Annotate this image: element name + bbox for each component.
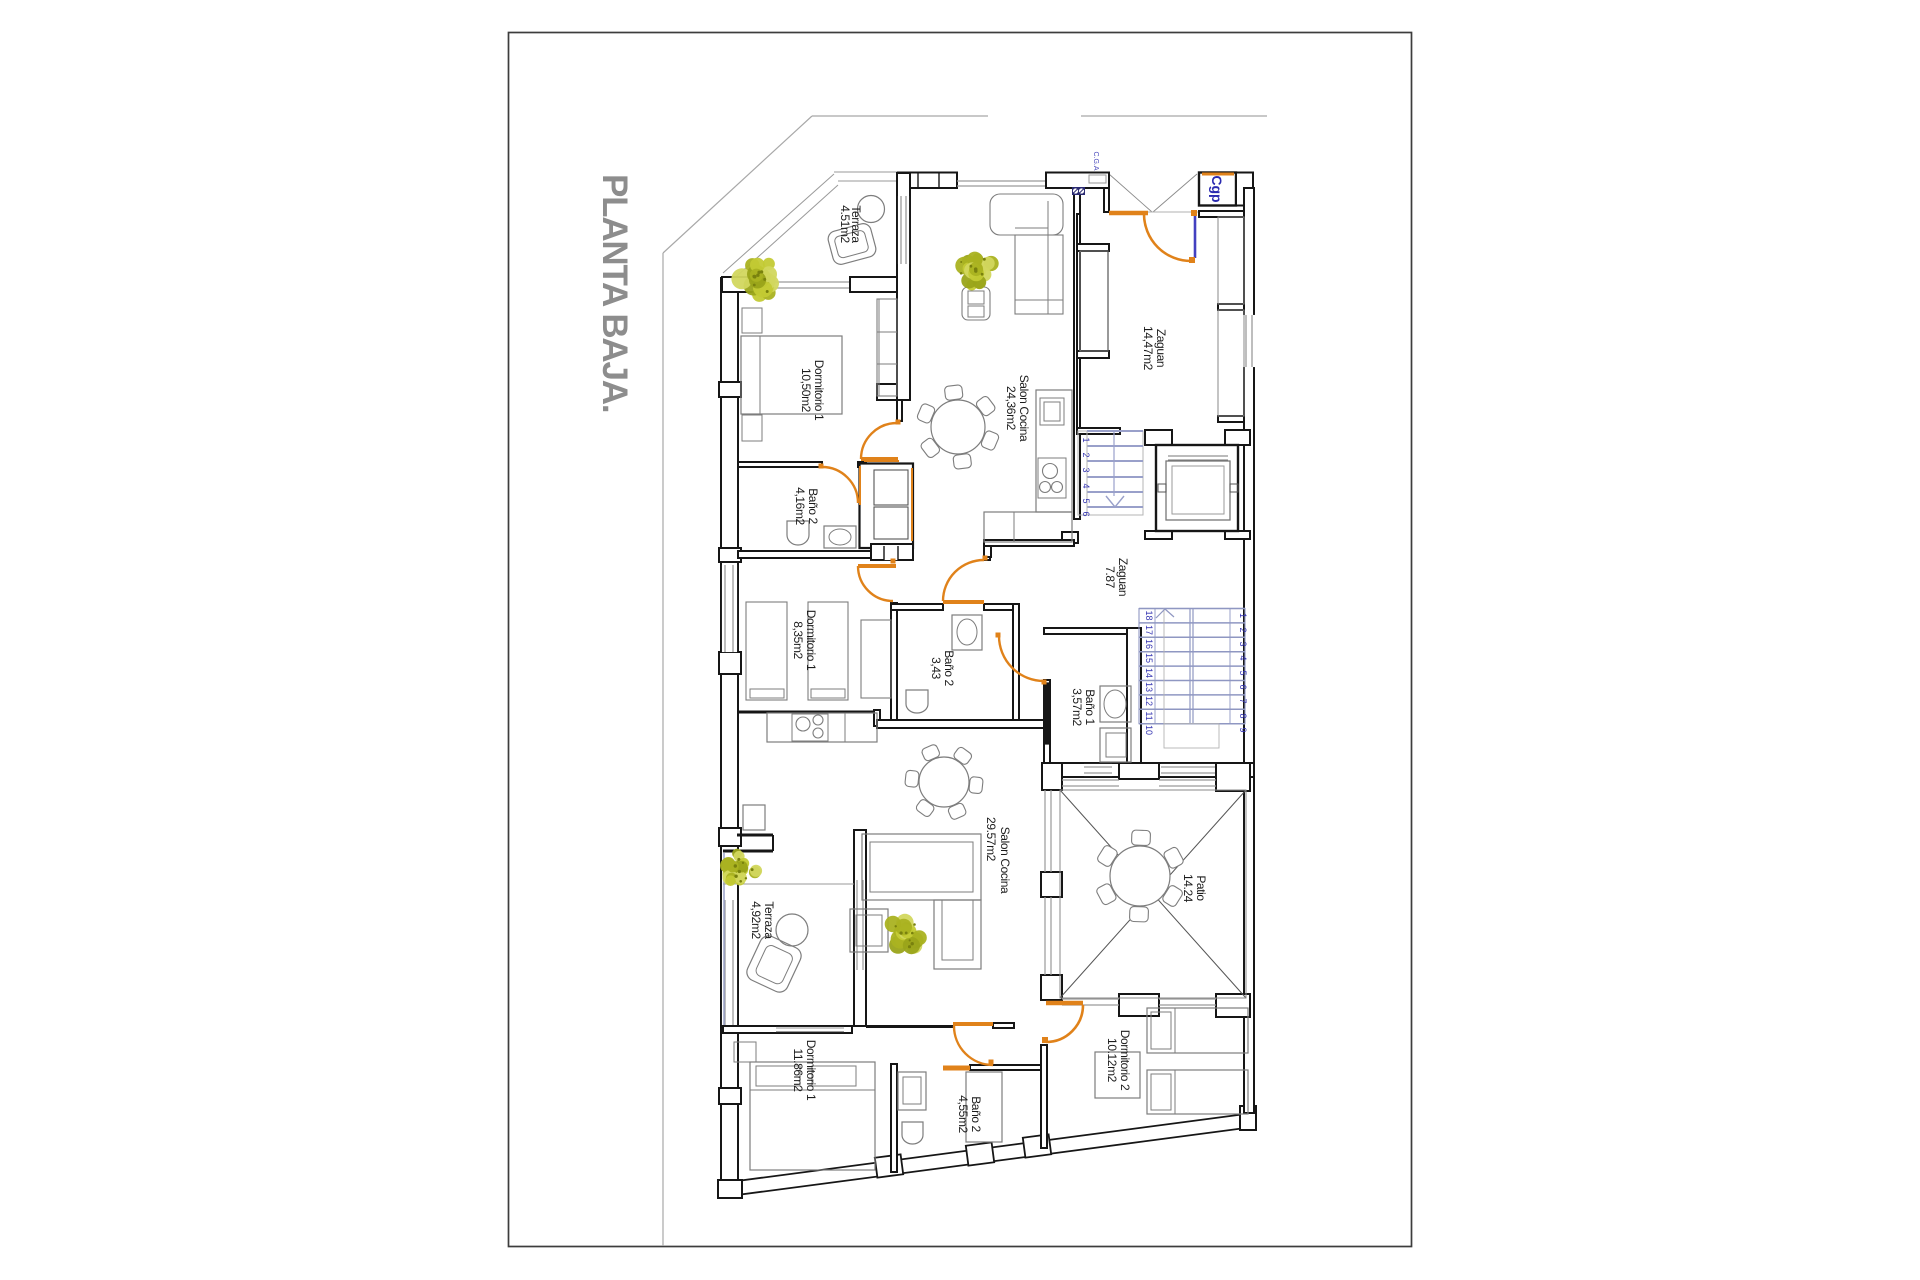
svg-text:10,50m2: 10,50m2: [799, 368, 813, 413]
svg-text:Salon Cocina: Salon Cocina: [1017, 375, 1031, 442]
svg-text:29.57m2: 29.57m2: [984, 817, 998, 862]
svg-text:Dormitorio 1: Dormitorio 1: [804, 610, 818, 671]
svg-text:15: 15: [1144, 653, 1154, 663]
svg-text:5: 5: [1238, 670, 1248, 675]
svg-text:24,36m2: 24,36m2: [1004, 386, 1018, 431]
svg-text:13: 13: [1144, 682, 1154, 692]
svg-text:1: 1: [1081, 437, 1091, 442]
svg-text:Dormitorio 1: Dormitorio 1: [812, 360, 826, 421]
svg-text:3,43: 3,43: [929, 657, 943, 679]
svg-text:12: 12: [1144, 696, 1154, 706]
svg-text:3: 3: [1238, 641, 1248, 646]
svg-text:PLANTA BAJA.: PLANTA BAJA.: [595, 174, 634, 412]
svg-text:3: 3: [1081, 467, 1091, 472]
svg-text:Salon Cocina: Salon Cocina: [998, 827, 1012, 894]
svg-text:8: 8: [1238, 713, 1248, 718]
svg-text:9: 9: [1238, 727, 1248, 732]
svg-text:14: 14: [1144, 668, 1154, 678]
svg-text:11: 11: [1144, 711, 1154, 720]
svg-text:8,35m2: 8,35m2: [791, 621, 805, 659]
svg-text:4,92m2: 4,92m2: [749, 901, 763, 939]
svg-text:4,55m2: 4,55m2: [956, 1095, 970, 1133]
svg-text:Dormitorio 2: Dormitorio 2: [1118, 1030, 1132, 1091]
svg-text:5: 5: [1081, 498, 1091, 503]
svg-text:Terraza: Terraza: [762, 901, 776, 939]
svg-text:Cgp: Cgp: [1209, 175, 1225, 202]
svg-text:Dormitorio 1: Dormitorio 1: [804, 1040, 818, 1101]
svg-text:2: 2: [1081, 452, 1091, 457]
svg-text:Baño 2: Baño 2: [942, 650, 956, 686]
svg-text:Baño 2: Baño 2: [969, 1096, 983, 1132]
svg-text:Baño 2: Baño 2: [806, 488, 820, 524]
svg-text:6: 6: [1238, 684, 1248, 689]
svg-text:10: 10: [1144, 725, 1154, 735]
svg-text:7: 7: [1238, 698, 1248, 703]
svg-text:4: 4: [1238, 655, 1248, 660]
svg-text:Zaguan: Zaguan: [1116, 558, 1130, 596]
svg-text:4.51m2: 4.51m2: [838, 205, 852, 243]
svg-text:2: 2: [1238, 627, 1248, 632]
svg-text:17: 17: [1144, 625, 1154, 635]
svg-text:14.24: 14.24: [1181, 874, 1195, 903]
svg-text:4,16m2: 4,16m2: [793, 487, 807, 525]
svg-text:Baño 1: Baño 1: [1083, 689, 1097, 725]
svg-text:C.G.A: C.G.A: [1092, 151, 1099, 170]
svg-text:Zaguan: Zaguan: [1154, 329, 1168, 367]
svg-text:Patio: Patio: [1194, 875, 1208, 901]
svg-text:7.87: 7.87: [1103, 566, 1117, 588]
svg-text:10.12m2: 10.12m2: [1105, 1038, 1119, 1083]
svg-text:14,47m2: 14,47m2: [1141, 326, 1155, 371]
svg-text:1: 1: [1238, 613, 1248, 618]
svg-text:18: 18: [1144, 610, 1154, 620]
svg-text:6: 6: [1081, 511, 1091, 516]
svg-text:4: 4: [1081, 483, 1091, 488]
svg-text:3,57m2: 3,57m2: [1070, 688, 1084, 726]
svg-text:16: 16: [1144, 639, 1154, 649]
svg-text:11.86m2: 11.86m2: [791, 1048, 805, 1092]
